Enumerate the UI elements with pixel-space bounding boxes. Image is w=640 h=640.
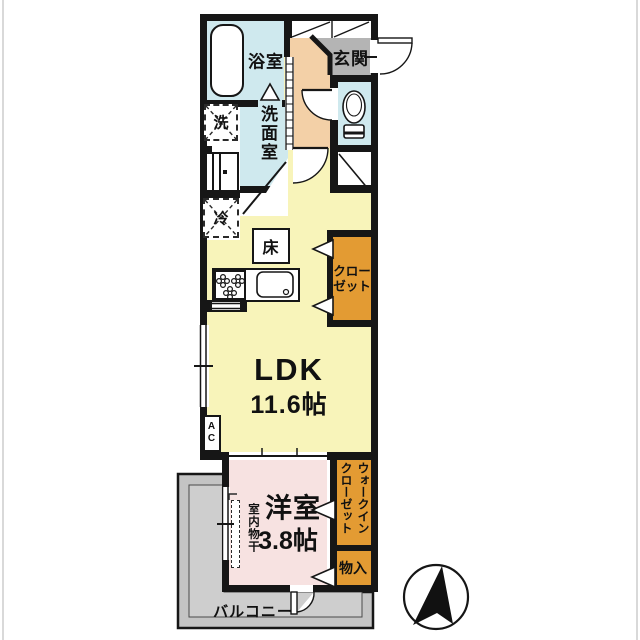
wall-bath-right	[284, 14, 292, 57]
wall-washroom-bottom	[240, 186, 274, 193]
wall-closet-bottom	[327, 320, 378, 327]
wall-bottom-right	[313, 585, 378, 592]
ldk-size-label: 11.6帖	[250, 385, 327, 421]
ldk-window	[198, 325, 209, 407]
wall-stub-a	[200, 146, 212, 154]
vanity-unit	[212, 152, 239, 192]
wall-ldk-south-right	[327, 452, 378, 460]
ldk-label: LDK	[254, 352, 324, 388]
indoor-drying-label: 室内物干	[245, 503, 261, 565]
balcony-door-opening	[290, 585, 313, 592]
wall-west-upper	[222, 452, 229, 487]
wall-left-upper	[200, 14, 207, 325]
walk-in-closet-label: ウォークインクローゼット	[337, 462, 371, 542]
room-toilet	[337, 82, 371, 145]
western-room-label: 洋室	[265, 487, 321, 526]
storage-label: 物入	[339, 558, 367, 578]
image-edge-right	[636, 0, 638, 640]
washing-machine-label: 洗	[213, 112, 228, 133]
kitchen-window	[212, 302, 240, 310]
wall-toilet-top	[330, 75, 378, 82]
sliding-door-opening	[229, 452, 327, 460]
washroom-label: 洗面室	[255, 105, 280, 171]
western-room-size-label: 3.8帖	[258, 521, 318, 557]
porch-hatch-area	[290, 21, 371, 38]
entrance-door-swing	[378, 38, 412, 74]
stove-unit	[214, 270, 246, 300]
wall-wic-left	[330, 460, 337, 585]
shaft-area	[337, 152, 371, 185]
balcony-door-swing	[291, 592, 314, 614]
wall-bottom-left	[222, 585, 290, 592]
wall-toilet-bottom	[330, 145, 378, 152]
wall-right-top	[371, 14, 378, 40]
bedroom-window	[221, 487, 230, 560]
refrigerator-label: 冷	[213, 208, 228, 229]
wall-closet-top	[327, 230, 378, 237]
wall-toilet-left-a	[330, 82, 338, 88]
floor-storage-label: 床	[262, 234, 279, 258]
ac-label: AC	[206, 421, 217, 449]
wall-closet-left	[327, 237, 333, 320]
bathtub	[210, 24, 244, 97]
north-compass-icon	[404, 565, 468, 629]
image-edge-left	[2, 0, 4, 640]
entrance-door-opening	[370, 40, 379, 73]
closet-label-line2: ゼット	[333, 276, 371, 295]
bathroom-label: 浴室	[248, 48, 284, 73]
wall-shaft-bottom	[330, 185, 378, 193]
vanity-handle	[223, 170, 227, 174]
wall-toilet-left-b	[330, 120, 338, 193]
entrance-label: 玄関	[333, 45, 369, 70]
vanity-divider	[219, 154, 221, 190]
wall-wic-storage	[330, 545, 378, 551]
wall-bath-bottom-b	[282, 100, 290, 107]
floor-plan-canvas: 浴室 玄関 洗面室 床 洗 冷 クロー ゼット LDK 11.6帖 AC 洋室 …	[0, 0, 640, 640]
indoor-drying-rod	[231, 500, 240, 568]
balcony-label: バルコニー	[213, 601, 293, 622]
